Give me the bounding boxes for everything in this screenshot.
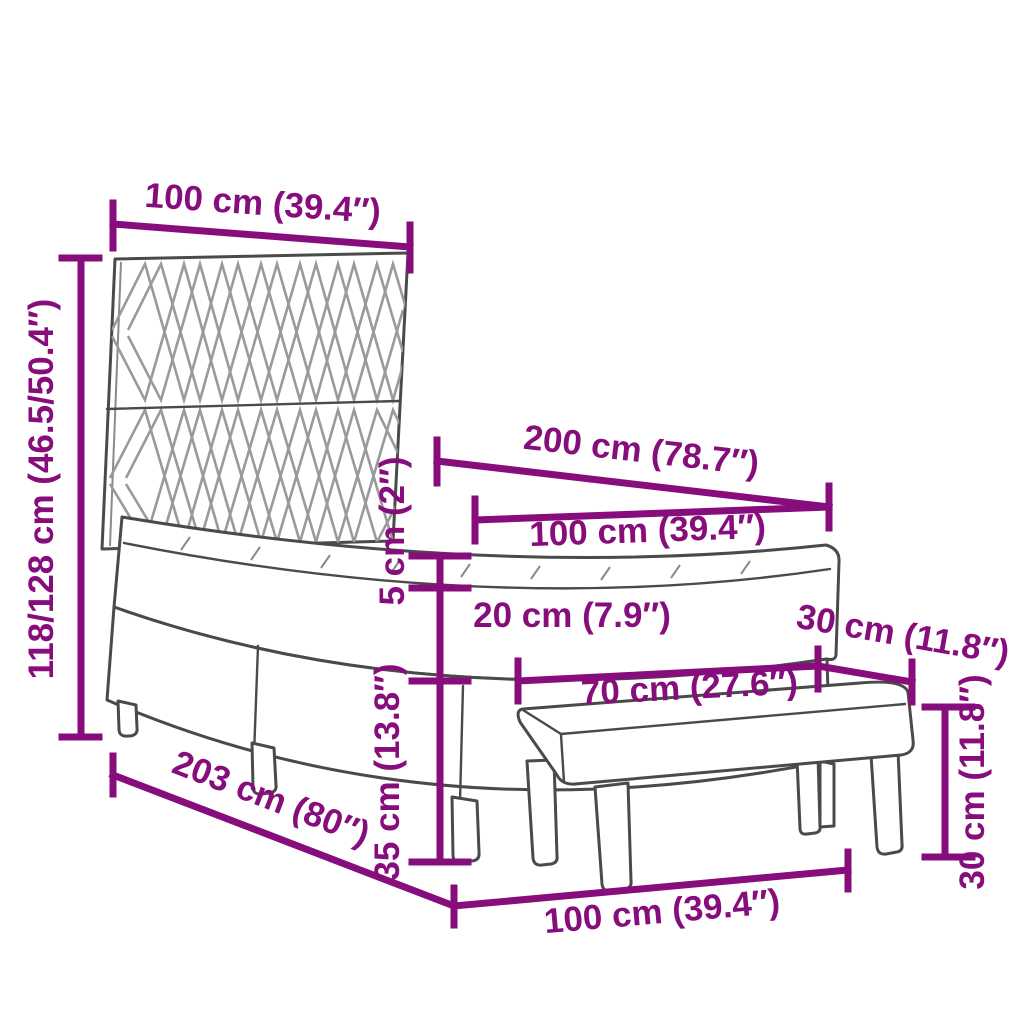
- bench-leg-front-left: [595, 783, 631, 891]
- bench-leg-back-right: [797, 756, 820, 834]
- bed-leg-1: [118, 701, 137, 736]
- dim-mattress-width-label: 100 cm (39.4″): [529, 507, 767, 554]
- dim-overall-height: 118/128 cm (46.5/50.4″): [22, 258, 99, 737]
- bench-leg-back-left: [527, 760, 557, 865]
- dim-mattress-width: 100 cm (39.4″): [475, 499, 829, 554]
- bench-leg-front-right: [871, 751, 902, 854]
- dim-mattress-thickness-label: 20 cm (7.9″): [473, 596, 671, 635]
- bed-leg-3: [452, 797, 479, 862]
- dim-headboard-width-label: 100 cm (39.4″): [143, 176, 382, 231]
- dim-floor-width: 100 cm (39.4″): [454, 852, 848, 941]
- dim-overall-height-label: 118/128 cm (46.5/50.4″): [22, 299, 61, 680]
- dim-floor-width-label: 100 cm (39.4″): [542, 882, 781, 941]
- dimension-diagram: 100 cm (39.4″) 118/128 cm (46.5/50.4″) 2…: [0, 0, 1024, 1024]
- dim-base-height-label: 35 cm (13.8″): [368, 663, 407, 880]
- diagram-canvas: 100 cm (39.4″) 118/128 cm (46.5/50.4″) 2…: [0, 0, 1024, 1024]
- dim-overall-height-line: [62, 258, 99, 737]
- bed-leg-4: [820, 761, 834, 827]
- dim-topper-thickness-label: 5 cm (2″): [373, 456, 412, 605]
- dim-bench-height: 30 cm (11.8″): [925, 674, 992, 889]
- dim-bench-height-label: 30 cm (11.8″): [953, 674, 992, 889]
